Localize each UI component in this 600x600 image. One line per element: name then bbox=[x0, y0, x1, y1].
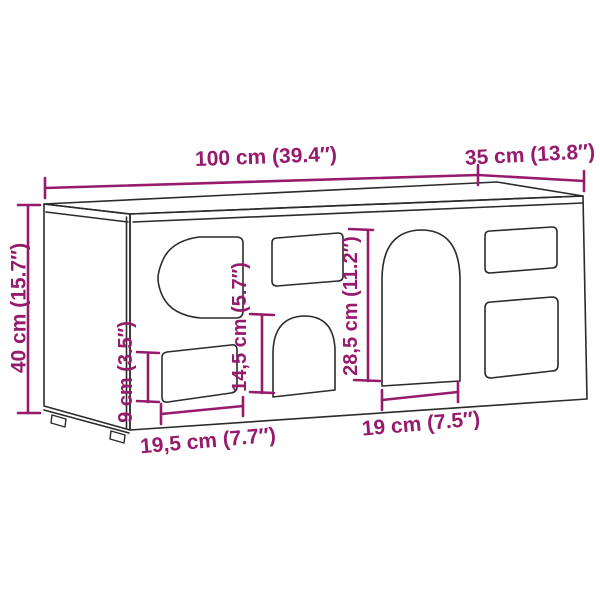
cabinet-foot-right bbox=[110, 431, 125, 443]
dimension-line-small-opening-height bbox=[137, 352, 159, 402]
dimension-label-door-opening-height: 28,5 cm (11.2″) bbox=[341, 236, 361, 376]
cabinet-side-top-thickness-line bbox=[46, 212, 128, 222]
dimension-line-middle-opening-height bbox=[250, 314, 274, 393]
dimension-line-door-opening-width bbox=[382, 382, 458, 410]
cutout-right-bottom-rectangle-opening bbox=[485, 297, 558, 378]
cutout-small-arch-opening bbox=[273, 316, 335, 397]
cutout-small-rectangle-opening bbox=[162, 345, 237, 402]
dimension-label-middle-opening-height: 14,5 cm (5.7″) bbox=[230, 262, 250, 392]
dimension-label-height: 40 cm (15.7″) bbox=[9, 243, 30, 373]
cutout-top-middle-rectangle-opening bbox=[272, 233, 343, 286]
dimension-label-small-opening-height: 9 cm (3.5″) bbox=[116, 321, 136, 423]
cabinet-foot-left bbox=[51, 415, 66, 427]
dimension-line-width-depth bbox=[45, 165, 584, 198]
cabinet-line-drawing bbox=[0, 0, 600, 600]
cutout-right-top-rectangle-opening bbox=[485, 227, 557, 273]
cutout-door-arch-opening bbox=[382, 230, 460, 386]
dimension-label-width: 100 cm (39.4″) bbox=[195, 144, 338, 170]
cabinet-front-top-thickness-line bbox=[133, 203, 583, 222]
product-dimension-diagram: 100 cm (39.4″) 35 cm (13.8″) 40 cm (15.7… bbox=[0, 0, 600, 600]
